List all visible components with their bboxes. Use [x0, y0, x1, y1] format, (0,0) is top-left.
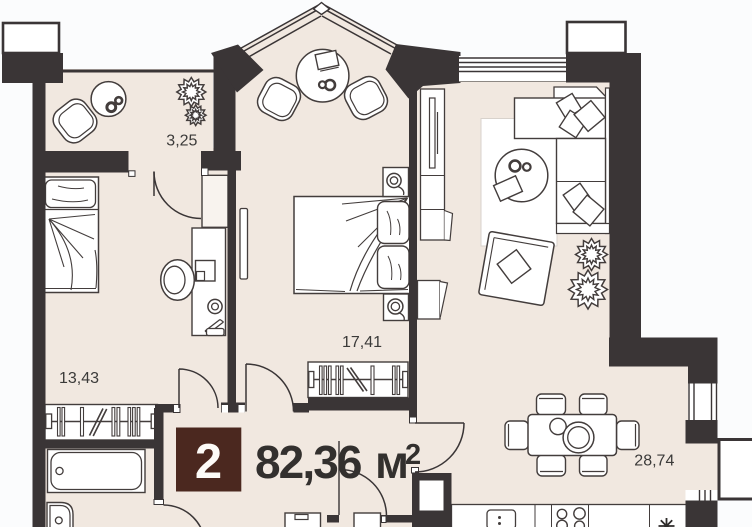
svg-text:2: 2 — [195, 435, 222, 489]
svg-text:3,25: 3,25 — [166, 132, 197, 149]
svg-text:17,41: 17,41 — [342, 334, 382, 351]
svg-text:13,43: 13,43 — [59, 370, 99, 387]
svg-text:82,36: 82,36 — [255, 436, 361, 488]
svg-text:2: 2 — [405, 439, 421, 471]
svg-text:м: м — [375, 436, 409, 488]
svg-text:28,74: 28,74 — [634, 452, 674, 469]
